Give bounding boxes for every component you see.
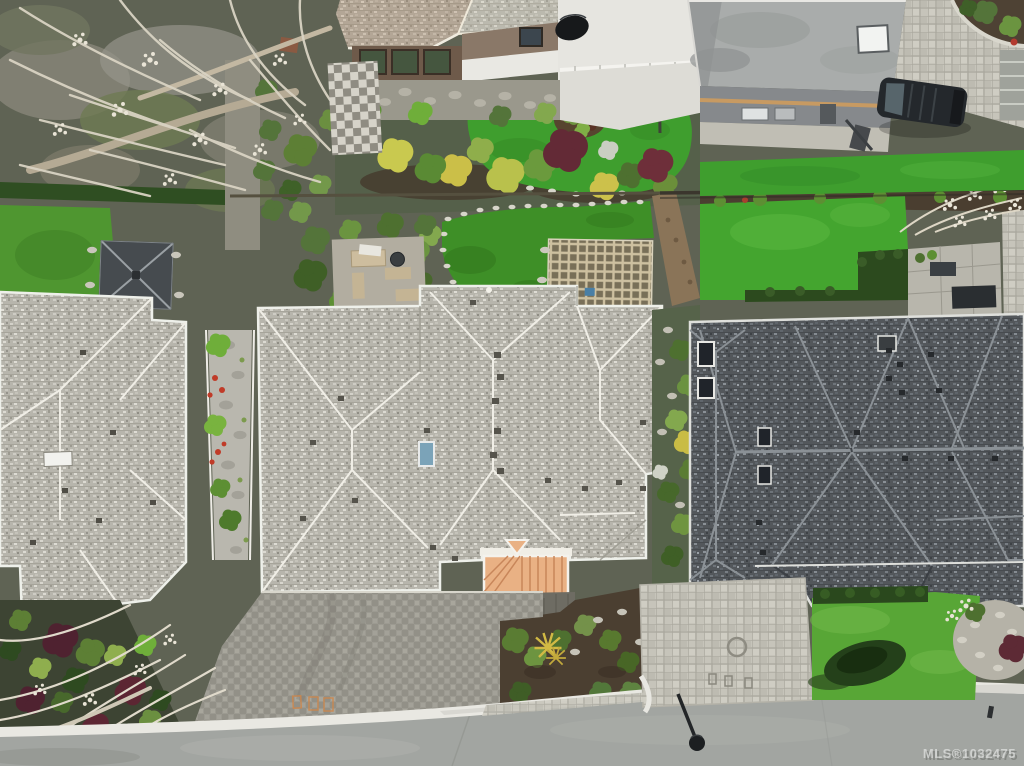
aerial-photo: MLS®1032475 MLS®1032475 xyxy=(0,0,1024,766)
roof-skylight xyxy=(857,25,888,53)
window xyxy=(775,108,795,120)
left-house xyxy=(0,292,186,617)
window xyxy=(520,28,542,46)
watermark: MLS®1032475 MLS®1032475 xyxy=(923,746,1018,763)
window xyxy=(424,50,450,74)
modern-house xyxy=(688,0,1024,196)
left-house-skylight xyxy=(44,452,72,467)
hot-tub xyxy=(952,285,997,309)
window xyxy=(742,108,768,120)
patio-furniture xyxy=(332,236,427,313)
copper-entry-roof xyxy=(480,540,572,598)
svg-text:MLS®1032475: MLS®1032475 xyxy=(923,746,1016,761)
skylight-blue xyxy=(419,442,434,466)
window xyxy=(392,50,418,74)
main-roof xyxy=(258,286,662,592)
door xyxy=(820,104,836,124)
right-house xyxy=(690,314,1024,606)
left-flagstone-path xyxy=(204,330,254,560)
steps-top-right xyxy=(1000,39,1024,121)
checker-path xyxy=(328,61,383,155)
